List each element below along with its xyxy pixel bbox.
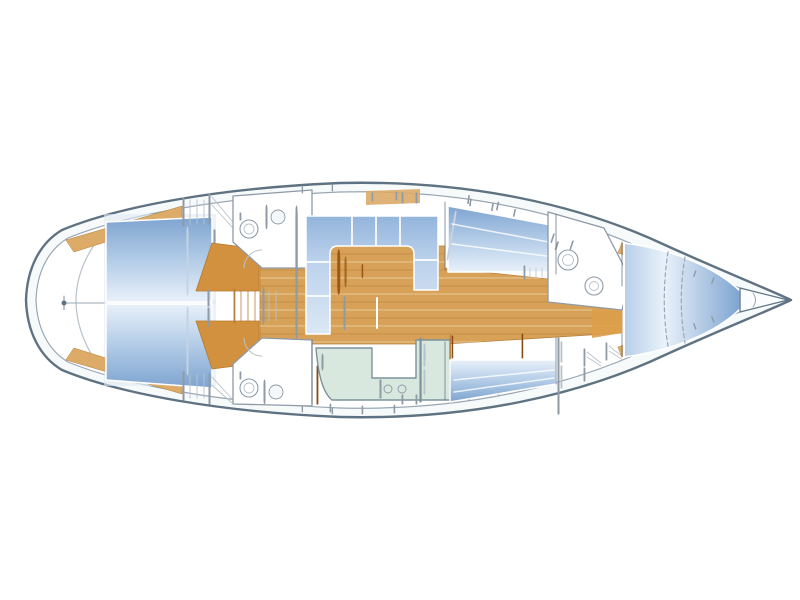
deck-hatch-starboard-b	[416, 395, 417, 404]
deck-port-window-b	[332, 185, 333, 191]
galley-head-door	[317, 366, 318, 404]
vberth	[624, 243, 740, 357]
deck-locker-c	[394, 405, 395, 413]
companionway-steps	[234, 289, 235, 323]
aft-starboard-locker	[183, 372, 184, 400]
aft-port-sink-basin	[271, 210, 285, 224]
aft-port-berth-pillow	[187, 227, 188, 295]
midship-starboard-cabinet-b	[522, 334, 523, 358]
forward-starboard-small-locker	[584, 368, 585, 381]
aft-port-locker	[183, 198, 184, 226]
aft-port-wardrobe	[209, 194, 210, 224]
aft-starboard-sink-counter	[264, 380, 265, 404]
salon-bench-seat	[344, 296, 345, 330]
aft-starboard-toilet-bowl	[240, 379, 258, 397]
deck-locker-b	[362, 406, 363, 414]
galley-tall-locker-panel-b	[424, 370, 425, 394]
galley-stove	[380, 380, 381, 398]
rudder-post-dot	[62, 301, 67, 306]
deck-hatch-port-a	[402, 193, 403, 203]
forward-head-sink-basin	[585, 277, 603, 295]
salon-shelf-box-a	[372, 193, 373, 201]
salon-table-centerpiece	[362, 264, 363, 278]
midship-starboard-cabinet-a	[452, 336, 453, 358]
aft-starboard-berth	[106, 304, 212, 388]
deck-starboard-window-b	[332, 408, 333, 414]
floorplan-svg	[0, 0, 800, 600]
forward-starboard-cane-locker-b	[606, 343, 607, 360]
midship-port-louvre-locker	[524, 266, 525, 279]
forward-starboard-locker-panel-b	[561, 366, 562, 388]
galley-tall-locker-panel-a	[424, 344, 425, 366]
aft-port-berth	[106, 217, 212, 302]
deck-hatch-starboard-a	[402, 395, 403, 404]
aft-port-toilet-tank	[240, 213, 241, 220]
companionway-ladder-top	[263, 287, 264, 325]
midship-starboard-headboard	[450, 334, 451, 360]
deck-locker-a	[330, 404, 331, 412]
forward-head-toilet-bowl	[558, 250, 578, 270]
engine-box-upper	[208, 290, 209, 306]
galley-sink	[322, 354, 323, 370]
deck-starboard-window-a	[302, 406, 303, 412]
salon-shelf-box-b	[396, 192, 397, 200]
aft-starboard-wardrobe	[209, 374, 210, 404]
aft-port-sink-counter	[266, 205, 267, 229]
yacht-floor-plan	[0, 0, 800, 600]
forward-starboard-locker-column	[558, 338, 559, 414]
salon-table	[338, 250, 340, 294]
aft-starboard-berth-pillow	[187, 307, 188, 375]
forward-starboard-cane-locker-a	[584, 349, 585, 366]
aft-port-toilet-bowl	[240, 220, 258, 238]
aft-starboard-toilet-tank	[240, 372, 241, 379]
deck-port-window-a	[302, 187, 303, 193]
salon-hull-shelf	[366, 189, 420, 205]
aft-starboard-sink-basin	[269, 385, 283, 399]
deck-hatch-port-b	[416, 193, 417, 203]
galley-tall-locker	[420, 338, 421, 402]
settee-backrest-arm	[296, 206, 297, 338]
engine-box-lower	[208, 308, 209, 326]
salon-table-inner-edge	[345, 257, 346, 287]
forward-starboard-locker-panel-a	[561, 342, 562, 362]
